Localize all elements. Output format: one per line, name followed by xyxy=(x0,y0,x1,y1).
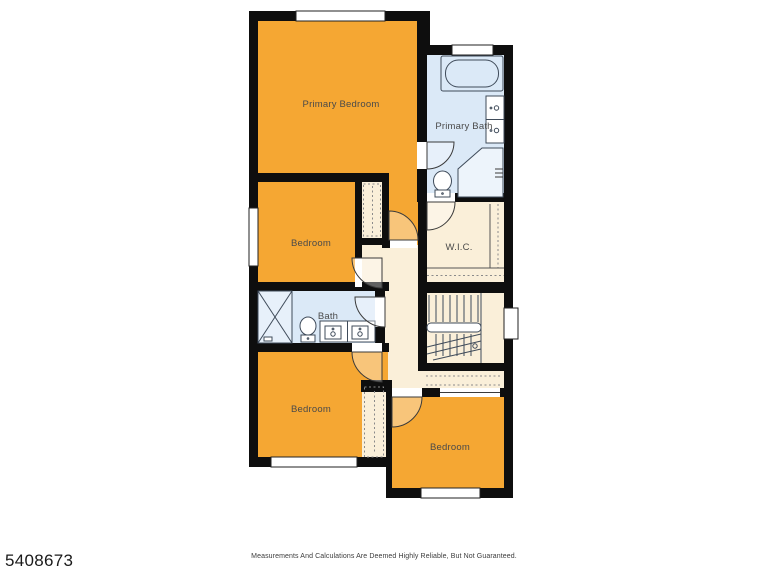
toilet xyxy=(300,317,316,342)
bedroom-upper-label: Bedroom xyxy=(291,238,331,249)
primary-bedroom-floor xyxy=(254,15,422,177)
bedroom-lower-right-label: Bedroom xyxy=(430,442,470,453)
floor-plan: Primary Bedroom Primary Bath Bedroom W.I… xyxy=(0,0,768,575)
primary-bath-door-opening xyxy=(417,142,427,169)
disclaimer-text: Measurements And Calculations Are Deemed… xyxy=(0,553,768,560)
bedroom-lower-left-floor-b xyxy=(254,380,364,461)
primary-bedroom-door-opening xyxy=(390,240,417,248)
primary-bath-window xyxy=(452,45,493,55)
stairs-window xyxy=(504,308,518,339)
bedroom-lower-right-door-opening xyxy=(392,388,422,397)
wic-label: W.I.C. xyxy=(445,242,472,253)
vanity-double-sink xyxy=(320,321,375,342)
primary-toilet xyxy=(434,171,452,197)
primary-bath-label: Primary Bath xyxy=(435,121,492,132)
primary-bedroom-window xyxy=(296,11,385,21)
bedroom-lower-left-label: Bedroom xyxy=(291,404,331,415)
stair-handrail xyxy=(427,323,481,332)
bath-label: Bath xyxy=(318,311,338,322)
bedroom-lower-right-window xyxy=(421,488,480,498)
bedroom-upper-window xyxy=(249,208,258,266)
primary-bedroom-label: Primary Bedroom xyxy=(303,99,380,110)
bedroom-lower-left-door-opening xyxy=(352,343,382,352)
shower xyxy=(258,291,292,343)
floor-plan-canvas: Primary Bedroom Primary Bath Bedroom W.I… xyxy=(0,0,768,575)
bedroom-upper-floor xyxy=(254,178,360,288)
bedroom-lower-left-window xyxy=(271,457,357,467)
bedroom-lower-right-wall-opening xyxy=(440,388,500,397)
primary-vanity-double-sink xyxy=(486,96,504,143)
